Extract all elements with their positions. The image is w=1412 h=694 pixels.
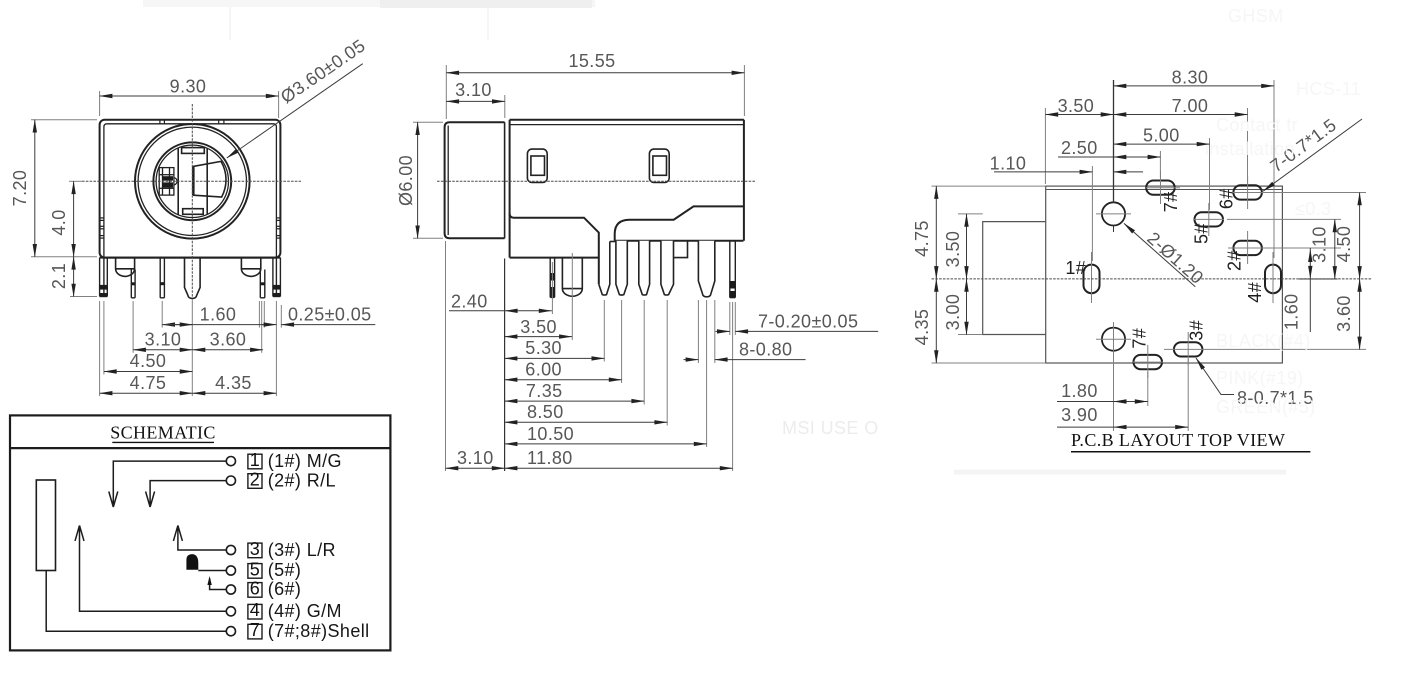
- svg-text:7.35: 7.35: [526, 381, 563, 401]
- svg-text:2.1: 2.1: [49, 263, 69, 289]
- svg-text:3: 3: [250, 539, 260, 559]
- svg-text:Contact tr: Contact tr: [1216, 115, 1298, 135]
- svg-text:8.50: 8.50: [527, 402, 564, 422]
- svg-text:6.00: 6.00: [525, 360, 562, 380]
- svg-text:installation: installation: [1205, 139, 1295, 159]
- svg-text:GREEN(#5): GREEN(#5): [1216, 397, 1316, 417]
- svg-text:3.60: 3.60: [210, 330, 247, 350]
- svg-text:4.50: 4.50: [130, 351, 167, 371]
- svg-text:3.10: 3.10: [145, 330, 182, 350]
- svg-text:1.10: 1.10: [990, 153, 1027, 173]
- svg-text:(5#): (5#): [268, 560, 302, 580]
- svg-text:2.40: 2.40: [451, 292, 488, 312]
- svg-text:1: 1: [250, 450, 260, 470]
- svg-text:3.90: 3.90: [1061, 405, 1098, 425]
- svg-text:2: 2: [250, 470, 260, 490]
- svg-text:4: 4: [250, 600, 260, 620]
- svg-text:3.60: 3.60: [1334, 295, 1354, 332]
- svg-text:≤0.3: ≤0.3: [1295, 199, 1332, 219]
- svg-text:1#: 1#: [1065, 258, 1086, 278]
- svg-text:4.35: 4.35: [215, 373, 252, 393]
- svg-text:7#: 7#: [1130, 328, 1150, 349]
- svg-text:4.50: 4.50: [1334, 226, 1354, 263]
- svg-text:7-0.20±0.05: 7-0.20±0.05: [758, 311, 858, 331]
- svg-text:4.0: 4.0: [49, 209, 69, 235]
- svg-text:P.C.B LAYOUT TOP VIEW: P.C.B LAYOUT TOP VIEW: [1071, 430, 1285, 450]
- svg-text:4#: 4#: [1245, 282, 1265, 303]
- svg-text:0.25±0.05: 0.25±0.05: [288, 304, 372, 324]
- svg-text:1.60: 1.60: [200, 304, 237, 324]
- svg-text:1.80: 1.80: [1061, 381, 1098, 401]
- svg-text:3.10: 3.10: [457, 448, 494, 468]
- svg-text:MSI USE O: MSI USE O: [782, 418, 879, 438]
- svg-text:8-0.80: 8-0.80: [739, 340, 792, 360]
- svg-text:5: 5: [250, 559, 260, 579]
- svg-text:4.75: 4.75: [912, 220, 932, 257]
- svg-text:(6#): (6#): [268, 579, 302, 599]
- svg-text:11.80: 11.80: [527, 448, 573, 468]
- svg-text:3.00: 3.00: [943, 294, 963, 331]
- svg-text:3.10: 3.10: [1310, 226, 1330, 263]
- svg-text:6#: 6#: [1217, 188, 1237, 209]
- svg-text:GHSM: GHSM: [1228, 6, 1284, 26]
- svg-text:8.30: 8.30: [1172, 68, 1209, 88]
- svg-text:3#: 3#: [1187, 320, 1207, 341]
- svg-text:2.50: 2.50: [1061, 138, 1098, 158]
- svg-text:3.50: 3.50: [1058, 96, 1095, 116]
- svg-text:(4#) G/M: (4#) G/M: [268, 601, 342, 621]
- svg-text:(7#;8#)Shell: (7#;8#)Shell: [268, 621, 370, 641]
- svg-text:(3#) L/R: (3#) L/R: [268, 540, 336, 560]
- svg-text:3.10: 3.10: [455, 80, 492, 100]
- svg-text:5#: 5#: [1191, 223, 1211, 244]
- svg-text:3.50: 3.50: [943, 231, 963, 268]
- svg-text:3.50: 3.50: [520, 317, 557, 337]
- svg-text:1.60: 1.60: [1282, 293, 1302, 330]
- svg-text:BLACK(#4): BLACK(#4): [1216, 331, 1311, 351]
- svg-text:7#: 7#: [1161, 191, 1181, 212]
- svg-text:PINK(#19): PINK(#19): [1216, 368, 1304, 388]
- svg-text:9.30: 9.30: [170, 77, 207, 97]
- svg-text:7: 7: [250, 620, 260, 640]
- svg-text:5.30: 5.30: [525, 338, 562, 358]
- svg-text:10.50: 10.50: [527, 424, 574, 444]
- svg-text:(2#) R/L: (2#) R/L: [268, 470, 336, 490]
- svg-text:HCS-11: HCS-11: [1296, 79, 1361, 99]
- svg-text:4.75: 4.75: [130, 373, 167, 393]
- svg-text:7.00: 7.00: [1172, 96, 1209, 116]
- svg-text:4.35: 4.35: [912, 309, 932, 346]
- svg-text:6: 6: [250, 578, 260, 598]
- svg-text:7.20: 7.20: [10, 170, 30, 207]
- svg-text:SCHEMATIC: SCHEMATIC: [110, 423, 216, 443]
- svg-text:Ø6.00: Ø6.00: [396, 155, 416, 206]
- svg-text:2#: 2#: [1225, 250, 1245, 271]
- svg-text:5.00: 5.00: [1143, 126, 1180, 146]
- svg-text:15.55: 15.55: [568, 51, 615, 71]
- svg-text:(1#) M/G: (1#) M/G: [268, 451, 342, 471]
